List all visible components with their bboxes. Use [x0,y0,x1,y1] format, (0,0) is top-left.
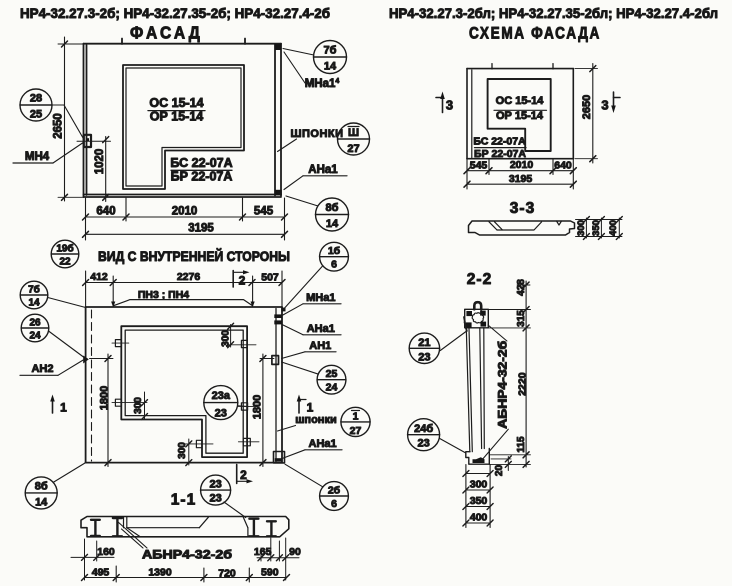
svg-text:7б: 7б [324,45,337,57]
svg-text:АНа1: АНа1 [308,164,338,176]
svg-text:ОР 15-14: ОР 15-14 [496,110,544,122]
svg-text:20: 20 [494,465,505,477]
svg-text:400: 400 [470,512,488,524]
svg-text:ШПОНКИ: ШПОНКИ [290,128,343,140]
svg-text:160: 160 [97,546,115,558]
svg-text:545: 545 [470,159,488,171]
svg-text:428: 428 [516,279,527,296]
svg-text:640: 640 [554,160,572,172]
svg-text:2: 2 [239,274,246,288]
svg-text:8б: 8б [326,202,339,214]
svg-text:Ш: Ш [348,127,359,139]
svg-text:1: 1 [353,410,359,422]
svg-text:1800: 1800 [99,386,111,410]
svg-text:АНа1: АНа1 [307,323,335,335]
svg-text:НР4-32.27.3-2бл; НР4-32.27.35-: НР4-32.27.3-2бл; НР4-32.27.35-2бл; НР4-3… [389,5,718,21]
svg-text:МН4: МН4 [25,151,50,163]
svg-text:23: 23 [418,351,430,363]
svg-text:шпонки: шпонки [295,414,336,426]
svg-text:ВИД С ВНУТРЕННЕЙ СТОРОНЫ: ВИД С ВНУТРЕННЕЙ СТОРОНЫ [98,247,290,264]
svg-text:27: 27 [350,425,362,437]
svg-text:3195: 3195 [509,173,533,185]
svg-text:2-2: 2-2 [467,271,492,288]
svg-text:МНа14: МНа14 [305,78,340,90]
svg-text:БР 22-07А: БР 22-07А [171,169,233,183]
svg-text:720: 720 [218,568,236,580]
svg-text:24: 24 [326,382,338,394]
svg-text:1: 1 [307,401,314,415]
svg-text:495: 495 [92,566,110,578]
svg-text:350: 350 [591,220,602,236]
svg-text:300: 300 [177,442,188,459]
svg-text:14: 14 [324,61,337,73]
svg-text:3-3: 3-3 [510,200,535,217]
svg-text:АНа1: АНа1 [309,438,337,450]
svg-text:2: 2 [240,468,247,482]
svg-text:2220: 2220 [517,372,529,396]
svg-text:28: 28 [30,93,42,105]
svg-text:НР4-32.27.3-2б; НР4-32.27.35-2: НР4-32.27.3-2б; НР4-32.27.35-2б; НР4-32.… [20,5,330,21]
svg-text:АБНР4-32-2б: АБНР4-32-2б [142,548,232,562]
svg-text:6: 6 [331,498,337,510]
svg-text:ОС 15-14: ОС 15-14 [496,95,545,107]
svg-text:26: 26 [29,318,41,329]
svg-text:ОР 15-14: ОР 15-14 [150,110,204,124]
svg-text:545: 545 [254,206,274,218]
svg-text:7б: 7б [28,284,40,296]
svg-text:590: 590 [261,566,279,578]
svg-text:БС 22-07А: БС 22-07А [473,136,526,148]
svg-text:ФАСАД: ФАСАД [130,23,203,43]
svg-text:6: 6 [331,259,337,271]
svg-text:14: 14 [35,496,48,508]
svg-text:24: 24 [29,331,41,342]
svg-text:19б: 19б [56,243,73,255]
svg-text:90: 90 [289,546,301,558]
svg-text:23: 23 [209,493,221,505]
svg-text:1б: 1б [328,245,341,257]
svg-text:2276: 2276 [177,271,201,283]
svg-text:23: 23 [209,479,221,491]
svg-text:1: 1 [60,401,67,415]
svg-text:14: 14 [326,218,339,230]
svg-text:300: 300 [133,397,144,414]
svg-text:1800: 1800 [252,395,264,419]
svg-text:23: 23 [417,438,429,450]
svg-text:25: 25 [326,368,338,380]
svg-text:3: 3 [446,98,453,113]
svg-text:3: 3 [601,98,608,113]
svg-text:БС 22-07А: БС 22-07А [170,156,232,170]
svg-text:23а: 23а [212,390,231,402]
svg-text:400: 400 [608,220,619,236]
svg-text:МНа1: МНа1 [306,292,335,304]
svg-text:300: 300 [220,330,231,347]
svg-text:640: 640 [96,206,115,218]
svg-text:1390: 1390 [148,566,172,578]
svg-text:507: 507 [261,272,279,284]
svg-text:21: 21 [418,337,430,349]
svg-text:3195: 3195 [188,223,214,235]
svg-text:115: 115 [516,436,527,453]
svg-text:АН1: АН1 [309,340,331,352]
svg-text:ОС 15-14: ОС 15-14 [149,96,203,110]
svg-text:27: 27 [347,143,359,155]
svg-text:300: 300 [470,479,488,491]
svg-text:350: 350 [470,495,488,507]
svg-text:2010: 2010 [172,206,198,218]
svg-text:412: 412 [90,271,108,283]
svg-text:14: 14 [28,298,40,309]
svg-text:СХЕМА ФАСАДА: СХЕМА ФАСАДА [469,25,601,43]
svg-text:2650: 2650 [53,113,65,139]
svg-text:2650: 2650 [581,95,593,119]
svg-text:24б: 24б [414,423,433,435]
svg-text:23: 23 [215,408,227,420]
svg-text:2010: 2010 [510,159,534,171]
svg-text:АБНР4-32-2б: АБНР4-32-2б [498,341,510,429]
svg-text:АН2: АН2 [31,363,53,375]
svg-text:300: 300 [576,220,587,236]
svg-text:2б: 2б [328,485,341,497]
svg-text:165: 165 [254,546,272,558]
svg-text:315: 315 [516,310,527,327]
svg-text:22: 22 [59,257,71,268]
svg-text:1020: 1020 [94,149,106,175]
svg-text:25: 25 [30,109,42,121]
svg-text:8б: 8б [35,480,48,492]
svg-text:1-1: 1-1 [171,492,196,509]
